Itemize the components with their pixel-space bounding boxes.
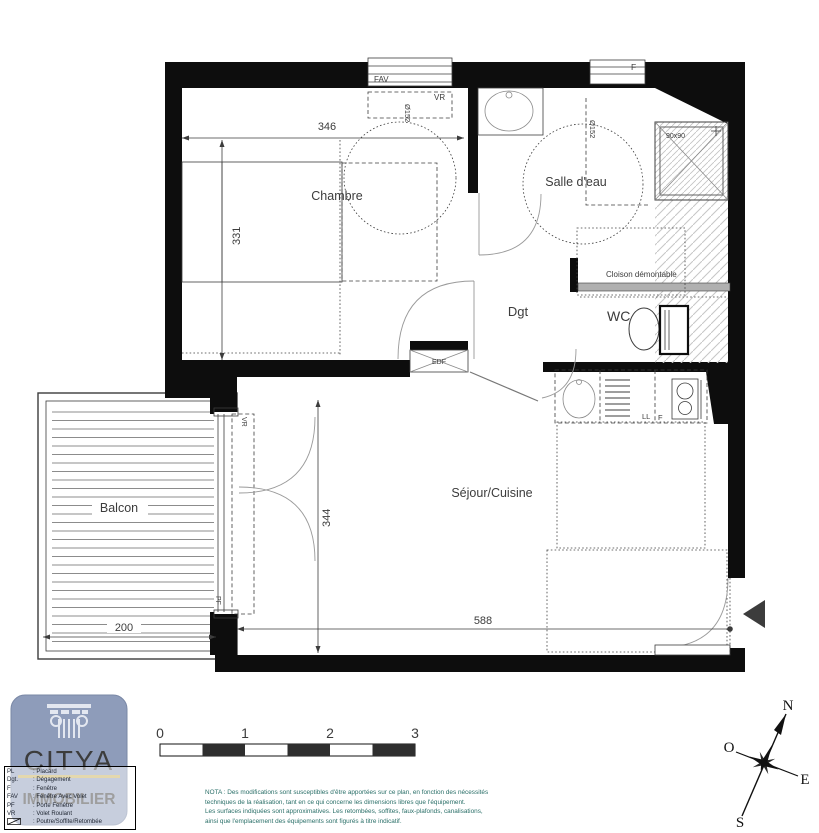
legend-row: : Poutre/Soffite/Retombée — [7, 818, 133, 828]
legend-desc: : Porte Fenêtre — [33, 802, 133, 810]
room-label-salle-deau: Salle d'eau — [545, 175, 607, 189]
sejour-dashed-furniture — [547, 422, 727, 652]
abbreviations-legend: PL : Placard Dgt. : Dégagement F : Fenêt… — [4, 766, 136, 830]
floor-plan-drawing: Chambre Salle d'eau WC Dgt Séjour/Cuisin… — [0, 0, 819, 690]
windows — [214, 58, 645, 618]
drainer — [605, 380, 630, 416]
scale-tick-0: 0 — [156, 725, 164, 741]
room-label-dgt: Dgt — [508, 304, 529, 319]
room-label-sejour: Séjour/Cuisine — [451, 486, 532, 500]
label-f-top: F — [631, 62, 636, 72]
corner-beam — [655, 88, 728, 124]
kitchen-pier — [706, 372, 728, 424]
label-edf: EDF — [432, 359, 446, 366]
legend-desc: : Fenêtre — [33, 785, 133, 793]
legend-abbr: Dgt. — [7, 776, 33, 784]
label-diam-chambre: Ø152 — [403, 104, 412, 122]
entrance-door-leaf — [655, 645, 730, 655]
compass-o: O — [724, 740, 735, 756]
label-vr-top: VR — [434, 93, 445, 102]
legend-row: VR : Volet Roulant — [7, 810, 133, 818]
legend-desc: : Placard — [33, 768, 133, 776]
dim-331: 331 — [231, 227, 243, 245]
beam-hatch-icon — [7, 818, 33, 828]
legend-abbr: PL — [7, 768, 33, 776]
hob — [672, 379, 701, 419]
nota-line: Les surfaces indiquées sont approximativ… — [205, 807, 541, 817]
label-pf-balcon: PF — [214, 596, 221, 605]
edf-panel — [410, 341, 468, 372]
kitchen-sink — [563, 380, 595, 418]
compass-star-icon — [742, 738, 788, 786]
label-diam-sdb: Ø152 — [588, 120, 597, 138]
legend-row: PF : Porte Fenêtre — [7, 802, 133, 810]
entrance-arrow-icon — [743, 600, 765, 628]
balcony-french-window — [214, 408, 254, 618]
dim-200: 200 — [115, 622, 133, 634]
label-cloison: Cloison démontable — [606, 270, 677, 279]
legend-row: Dgt. : Dégagement — [7, 776, 133, 784]
room-label-chambre: Chambre — [311, 189, 362, 203]
chambre-dashed-furniture — [182, 140, 437, 355]
nota-line: NOTA : Des modifications sont susceptibl… — [205, 788, 541, 798]
legend-abbr: FAV — [7, 793, 33, 801]
compass-n: N — [783, 698, 794, 714]
label-f-kitchen: F — [658, 413, 663, 422]
scale-tick-2: 2 — [326, 725, 334, 741]
nota-line: ainsi que l'emplacement des équipements … — [205, 817, 541, 827]
room-label-balcon: Balcon — [100, 501, 138, 515]
compass-s: S — [736, 815, 744, 831]
compass-north-arrow-icon — [774, 714, 786, 735]
nota-line: techniques de la réalisation, tant en ce… — [205, 798, 541, 808]
bed — [182, 162, 342, 282]
scale-bar: 0 1 2 3 — [155, 718, 430, 769]
label-fav: FAV — [374, 75, 389, 84]
legend-desc: : Poutre/Soffite/Retombée — [33, 818, 133, 828]
legend-row: PL : Placard — [7, 768, 133, 776]
dim-588: 588 — [474, 615, 492, 627]
scale-tick-1: 1 — [241, 725, 249, 741]
balcony — [38, 393, 237, 659]
floor-plan-page: Chambre Salle d'eau WC Dgt Séjour/Cuisin… — [0, 0, 819, 833]
legend-desc: : Volet Roulant — [33, 810, 133, 818]
label-ll: LL — [642, 412, 650, 421]
legend-abbr: F — [7, 785, 33, 793]
window-f — [590, 60, 645, 84]
kitchen-counter — [555, 370, 707, 423]
legend-row: F : Fenêtre — [7, 785, 133, 793]
compass-e: E — [800, 772, 809, 788]
legend-row: FAV : Fenêtre Avec Volet — [7, 793, 133, 801]
room-label-wc: WC — [607, 308, 630, 324]
label-shower-size: 90x90 — [666, 133, 685, 140]
washbasin — [478, 88, 543, 135]
balcony-decking — [52, 406, 218, 648]
dim-346: 346 — [318, 121, 336, 133]
legend-desc: : Fenêtre Avec Volet — [33, 793, 133, 801]
dim-344: 344 — [321, 509, 333, 527]
legend-abbr: PF — [7, 802, 33, 810]
label-vr-balcon: VR — [240, 417, 247, 427]
scale-tick-3: 3 — [411, 725, 419, 741]
legend-desc: : Dégagement — [33, 776, 133, 784]
legend-abbr: VR — [7, 810, 33, 818]
nota-disclaimer: NOTA : Des modifications sont susceptibl… — [205, 788, 541, 826]
compass-rose: N O E S — [700, 696, 819, 833]
